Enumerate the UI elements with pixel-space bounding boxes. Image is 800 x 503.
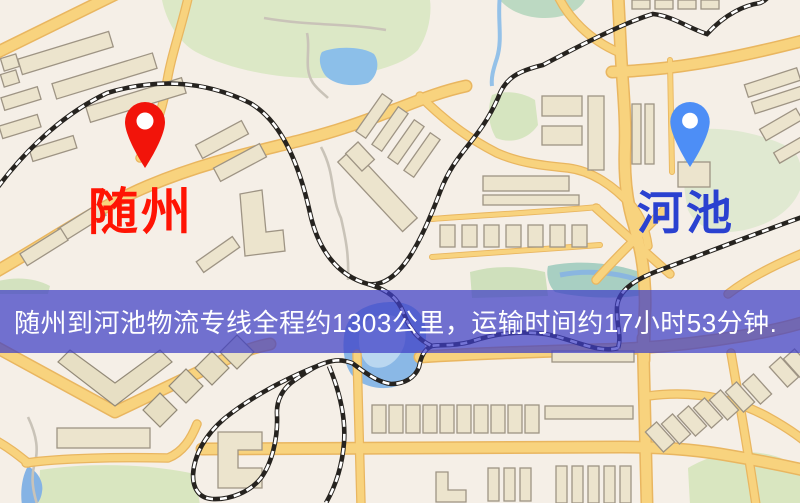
origin-pin-shape xyxy=(125,102,165,168)
destination-city-label: 河池 xyxy=(637,177,735,243)
route-summary-text: 随州到河池物流专线全程约1303公里，运输时间约17小时53分钟. xyxy=(0,303,777,340)
map-background xyxy=(0,0,800,503)
map-canvas: 随州 河池 随州到河池物流专线全程约1303公里，运输时间约17小时53分钟. xyxy=(0,0,800,503)
buildings-layer xyxy=(0,0,800,503)
destination-pin-hole xyxy=(682,113,698,129)
destination-pin-shape xyxy=(670,102,709,167)
route-summary-banner: 随州到河池物流专线全程约1303公里，运输时间约17小时53分钟. xyxy=(0,290,800,353)
origin-pin-hole xyxy=(137,113,154,130)
origin-city-label: 随州 xyxy=(88,172,194,244)
destination-pin-icon xyxy=(668,100,712,167)
origin-pin-icon xyxy=(123,100,167,168)
